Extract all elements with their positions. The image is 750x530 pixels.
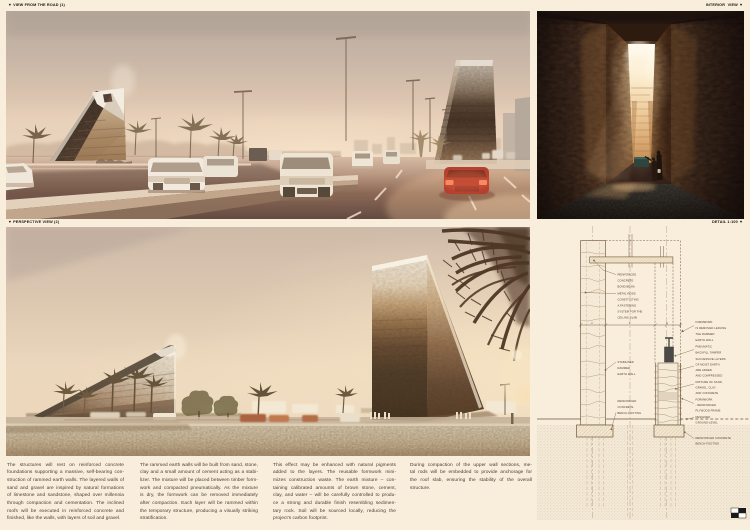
svg-text:ARE ADDED: ARE ADDED <box>696 368 712 372</box>
svg-text:OF MOIST EARTH: OF MOIST EARTH <box>696 363 720 367</box>
svg-text:PLYWOOD FRAME: PLYWOOD FRAME <box>696 409 721 413</box>
svg-text:EARTH WALL: EARTH WALL <box>696 338 714 342</box>
svg-text:FORMWORK: FORMWORK <box>696 320 713 324</box>
svg-text:REINFORCED: REINFORCED <box>618 399 637 403</box>
svg-text:STABILISED: STABILISED <box>618 360 634 364</box>
svg-text:DESIGNED: DESIGNED <box>696 415 711 419</box>
svg-text:GROUND-LEVEL: GROUND-LEVEL <box>696 421 719 425</box>
svg-text:- REINFORCED: - REINFORCED <box>696 403 717 407</box>
svg-text:2: 2 <box>666 321 668 325</box>
svg-text:METAL RODS: METAL RODS <box>618 292 636 296</box>
svg-text:4: 4 <box>629 321 631 325</box>
svg-text:PNEUMATIC: PNEUMATIC <box>696 345 713 349</box>
svg-text:THE RAMMED: THE RAMMED <box>696 332 715 336</box>
svg-text:A FASTENING: A FASTENING <box>618 304 637 308</box>
svg-text:FORMWORK: FORMWORK <box>696 398 713 402</box>
svg-text:CEILING SLAB: CEILING SLAB <box>618 316 638 320</box>
svg-text:AND COMPRESSED: AND COMPRESSED <box>696 374 723 378</box>
svg-text:BOND BEAM: BOND BEAM <box>618 285 636 289</box>
svg-text:MIXTURE OF SAND,: MIXTURE OF SAND, <box>696 380 723 384</box>
svg-text:RAMMED: RAMMED <box>618 366 631 370</box>
svg-text:SYSTEM FOR THE: SYSTEM FOR THE <box>618 310 643 314</box>
svg-text:IS REMOVED LEAVING: IS REMOVED LEAVING <box>696 326 727 330</box>
svg-text:GRAVEL, CLAY,: GRAVEL, CLAY, <box>696 386 717 390</box>
svg-text:REINFORCED: REINFORCED <box>618 273 637 277</box>
svg-text:EARTH WALL: EARTH WALL <box>618 372 636 376</box>
svg-text:AND CONCRETE: AND CONCRETE <box>696 391 719 395</box>
svg-text:BACKFILL TAMPER: BACKFILL TAMPER <box>696 351 722 355</box>
svg-text:REINFORCED CONCRETE: REINFORCED CONCRETE <box>696 436 732 440</box>
svg-text:CONCRETE: CONCRETE <box>618 405 634 409</box>
svg-text:BENCH FOOTING: BENCH FOOTING <box>618 411 642 415</box>
svg-text:CONSTITUTING: CONSTITUTING <box>618 298 639 302</box>
svg-text:BENCH FOOTING: BENCH FOOTING <box>696 442 720 446</box>
svg-text:SUCCESSIVE LAYERS: SUCCESSIVE LAYERS <box>696 357 726 361</box>
svg-text:CONCRETE: CONCRETE <box>618 279 634 283</box>
